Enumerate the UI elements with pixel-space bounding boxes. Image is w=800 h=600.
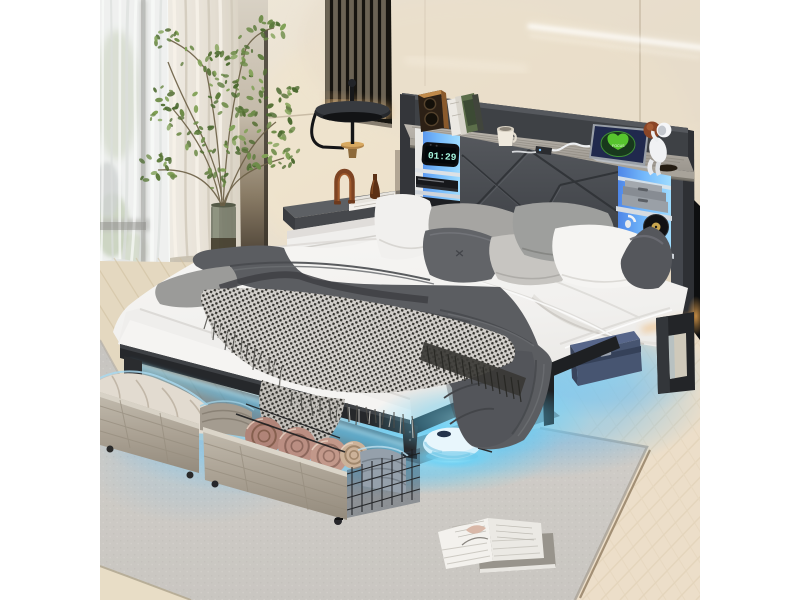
svg-text:FOCUS: FOCUS bbox=[612, 144, 625, 148]
svg-text:01:29: 01:29 bbox=[428, 150, 458, 163]
